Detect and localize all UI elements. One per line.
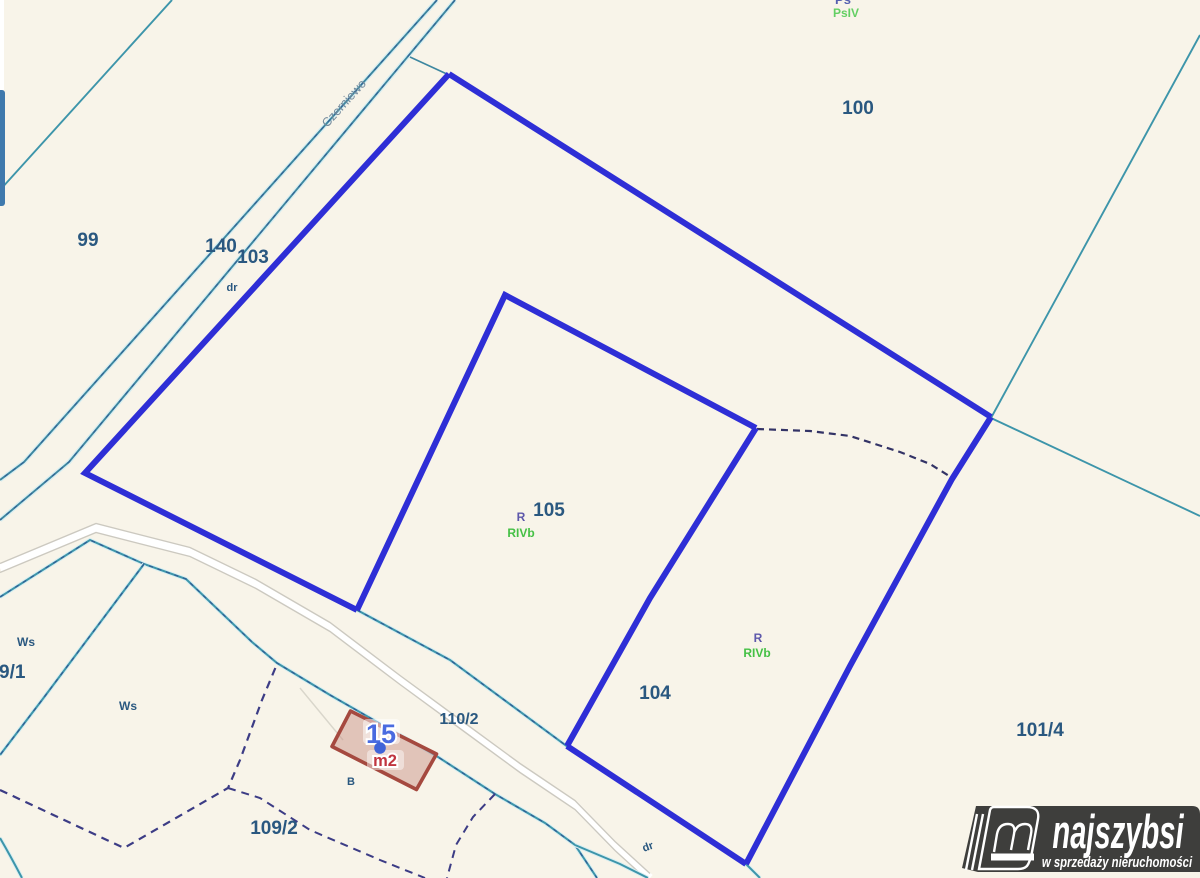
svg-text:B: B [347,776,355,788]
svg-text:R: R [517,510,526,524]
svg-text:101/4: 101/4 [1016,720,1064,741]
svg-text:najszybsi: najszybsi [1052,807,1184,859]
svg-text:104: 104 [639,683,671,704]
svg-text:99: 99 [77,230,98,251]
svg-text:140: 140 [205,236,237,257]
svg-text:Ws: Ws [17,635,35,649]
svg-text:109/2: 109/2 [250,818,298,839]
svg-text:103: 103 [237,247,269,268]
svg-text:9/1: 9/1 [0,662,26,683]
svg-text:R: R [754,631,763,645]
svg-text:RIVb: RIVb [507,526,534,540]
svg-text:100: 100 [842,98,874,119]
svg-text:Ws: Ws [119,699,137,713]
svg-text:dr: dr [227,282,239,294]
svg-text:RIVb: RIVb [743,646,770,660]
svg-text:m2: m2 [373,752,397,770]
svg-text:PsIV: PsIV [833,6,859,20]
svg-text:105: 105 [533,500,565,521]
svg-text:110/2: 110/2 [439,711,478,728]
svg-text:w sprzedaży nieruchomości: w sprzedaży nieruchomości [1042,854,1193,871]
